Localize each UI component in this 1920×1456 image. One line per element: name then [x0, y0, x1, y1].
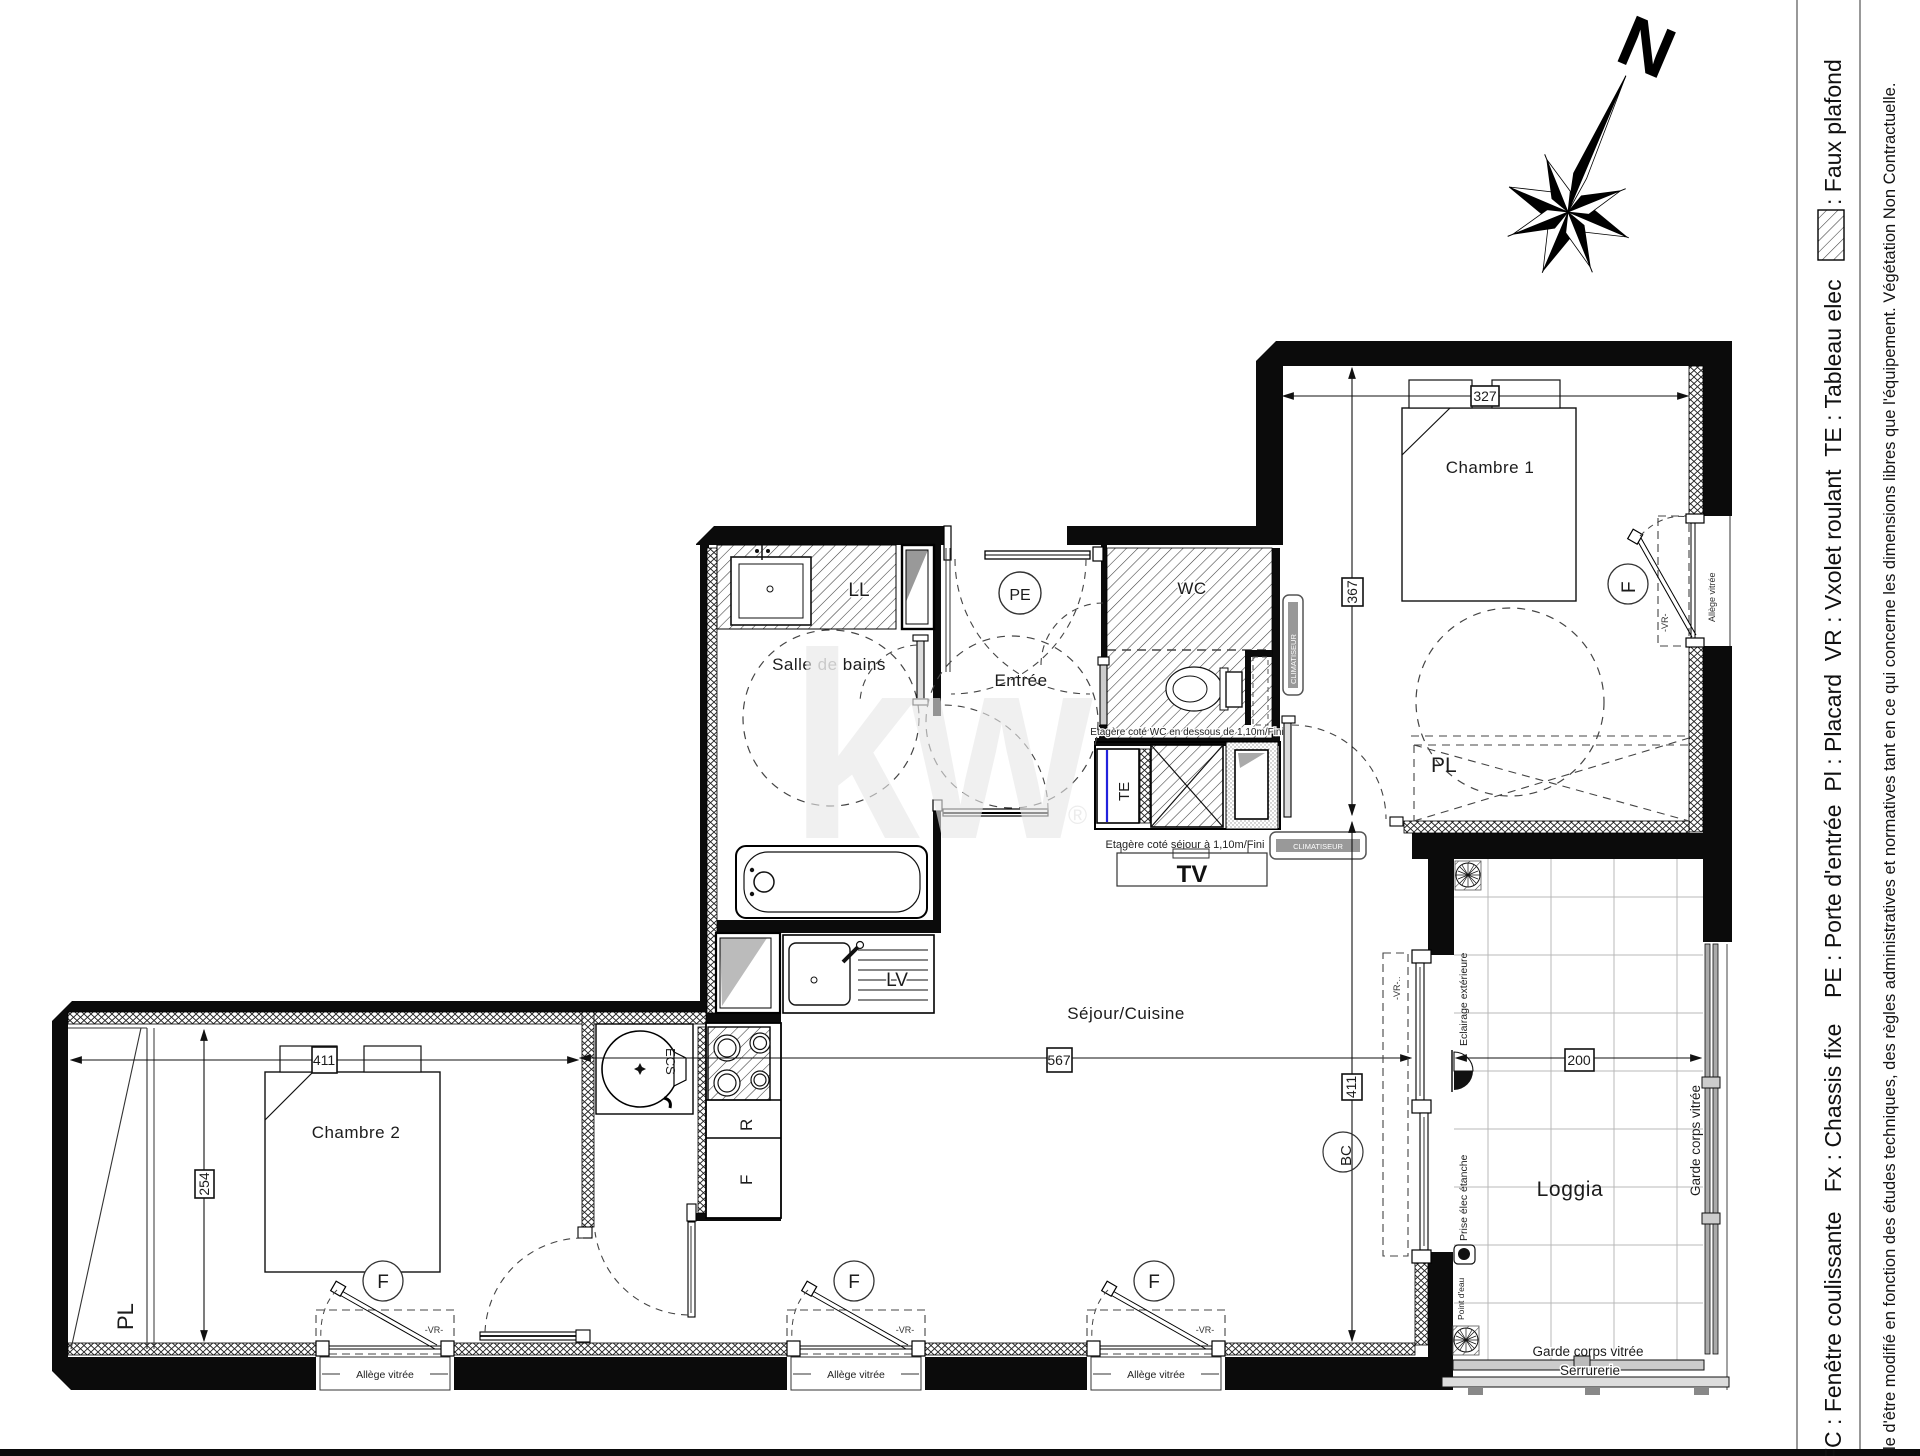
svg-text:Prise élec étanche: Prise élec étanche	[1458, 1154, 1470, 1241]
svg-text:F: F	[737, 1175, 756, 1185]
svg-text:F: F	[377, 1272, 389, 1293]
svg-text:-VR-: -VR-	[1660, 614, 1670, 633]
svg-text:567: 567	[1047, 1052, 1071, 1068]
svg-text:LV: LV	[886, 970, 908, 991]
svg-text:FC : Fenêtre coulissante Fx: FC : Fenêtre coulissante Fx : Chassis fi…	[1820, 279, 1846, 1456]
svg-text:F: F	[848, 1272, 860, 1293]
svg-text:Chambre 1: Chambre 1	[1446, 458, 1535, 477]
svg-text:-VR-: -VR-	[896, 1325, 915, 1335]
svg-text:Allège vitrée: Allège vitrée	[1707, 572, 1717, 622]
svg-text:Etagère coté WC en dessous de: Etagère coté WC en dessous de 1,10m/Fini	[1090, 727, 1283, 738]
svg-text:F: F	[1619, 581, 1640, 593]
svg-text:WC: WC	[1177, 579, 1206, 598]
svg-text:200: 200	[1567, 1052, 1591, 1068]
svg-text:®: ®	[1068, 800, 1087, 830]
svg-text:-VR-..: -VR-..	[1392, 977, 1402, 1001]
svg-text:le d'être modifié en fonction: le d'être modifié en fonction des études…	[1881, 83, 1899, 1450]
svg-text:ECS: ECS	[663, 1048, 678, 1075]
svg-text:TE: TE	[1116, 782, 1133, 801]
svg-text:PL: PL	[113, 1303, 138, 1330]
svg-text:CLIMATISEUR: CLIMATISEUR	[1289, 634, 1298, 684]
svg-text:Point d'eau: Point d'eau	[1456, 1277, 1466, 1320]
svg-text:Eclairage extérieure: Eclairage extérieure	[1458, 952, 1470, 1046]
svg-text:411: 411	[313, 1052, 336, 1068]
svg-text:TV: TV	[1177, 861, 1208, 888]
svg-text:F: F	[1148, 1272, 1160, 1293]
svg-text:Loggia: Loggia	[1537, 1178, 1604, 1201]
svg-text:254: 254	[196, 1172, 212, 1196]
svg-text:kw: kw	[790, 598, 1093, 894]
svg-text:367: 367	[1344, 580, 1360, 604]
svg-text:BC: BC	[1338, 1145, 1355, 1166]
svg-text:Allège vitrée: Allège vitrée	[356, 1369, 414, 1381]
svg-text:327: 327	[1473, 388, 1497, 404]
svg-text:411: 411	[1343, 1076, 1359, 1099]
svg-text:-VR-: -VR-	[1196, 1325, 1215, 1335]
svg-text:Serrurerie: Serrurerie	[1560, 1363, 1620, 1378]
svg-text:-VR-: -VR-	[425, 1325, 444, 1335]
svg-text:Allège vitrée: Allège vitrée	[1127, 1369, 1185, 1381]
svg-text:: Faux plafond: : Faux plafond	[1820, 59, 1846, 205]
svg-text:R: R	[737, 1119, 756, 1131]
svg-text:PL: PL	[1431, 754, 1457, 777]
svg-text:Chambre 2: Chambre 2	[312, 1123, 401, 1142]
svg-text:CLIMATISEUR: CLIMATISEUR	[1293, 842, 1343, 851]
svg-text:Allège vitrée: Allège vitrée	[827, 1369, 885, 1381]
svg-text:Séjour/Cuisine: Séjour/Cuisine	[1067, 1004, 1185, 1023]
svg-text:Garde corps vitrée: Garde corps vitrée	[1688, 1085, 1703, 1196]
